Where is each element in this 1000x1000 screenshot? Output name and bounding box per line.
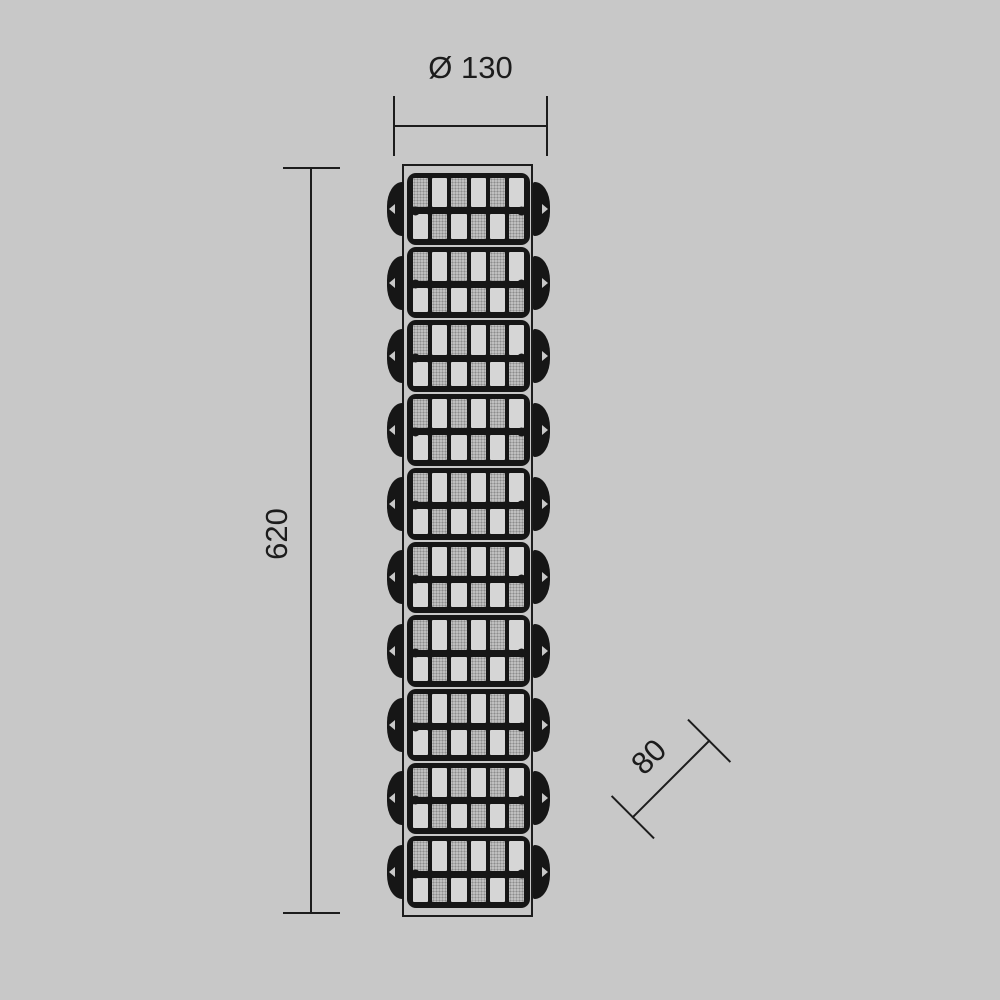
knob-notch-icon bbox=[542, 425, 548, 435]
crystal-cell bbox=[490, 583, 505, 607]
crystal-cell bbox=[432, 252, 447, 281]
crystal-cell bbox=[471, 362, 486, 386]
segment-grid bbox=[413, 252, 524, 313]
band-dot bbox=[517, 575, 526, 584]
band-dot bbox=[517, 427, 526, 436]
crystal-cell bbox=[490, 768, 505, 797]
left-knob bbox=[387, 771, 404, 825]
crystal-cell bbox=[413, 583, 428, 607]
height-dimension-label: 620 bbox=[261, 504, 293, 564]
crystal-cell bbox=[490, 288, 505, 312]
crystal-cell bbox=[413, 288, 428, 312]
band-dot bbox=[411, 648, 420, 657]
crystal-cell bbox=[451, 804, 466, 828]
crystal-cell bbox=[413, 768, 428, 797]
crystal-cell bbox=[432, 657, 447, 681]
crystal-cell bbox=[509, 362, 524, 386]
crystal-cell bbox=[471, 288, 486, 312]
crystal-cell bbox=[451, 730, 466, 754]
crystal-cell bbox=[490, 620, 505, 649]
right-knob bbox=[533, 477, 550, 531]
knob-notch-icon bbox=[542, 867, 548, 877]
fixture-segments bbox=[407, 173, 530, 908]
segment-grid bbox=[413, 547, 524, 608]
crystal-cell bbox=[451, 878, 466, 902]
band-dot bbox=[411, 796, 420, 805]
segment-grid bbox=[413, 178, 524, 239]
crystal-cell bbox=[471, 878, 486, 902]
right-knob bbox=[533, 403, 550, 457]
crystal-cell bbox=[413, 362, 428, 386]
crystal-cell bbox=[490, 878, 505, 902]
crystal-cell bbox=[471, 547, 486, 576]
crystal-cell bbox=[509, 583, 524, 607]
crystal-cell bbox=[432, 620, 447, 649]
crystal-cell bbox=[471, 730, 486, 754]
crystal-cell bbox=[451, 620, 466, 649]
fixture-segment bbox=[407, 763, 530, 835]
crystal-cell bbox=[413, 878, 428, 902]
crystal-cell bbox=[509, 509, 524, 533]
band-dot bbox=[411, 575, 420, 584]
crystal-cell bbox=[509, 435, 524, 459]
band-dot bbox=[411, 427, 420, 436]
crystal-cell bbox=[509, 878, 524, 902]
crystal-cell bbox=[413, 473, 428, 502]
crystal-cell bbox=[471, 804, 486, 828]
right-knob bbox=[533, 698, 550, 752]
crystal-cell bbox=[451, 583, 466, 607]
crystal-cell bbox=[451, 768, 466, 797]
segment-grid bbox=[413, 399, 524, 460]
crystal-cell bbox=[432, 325, 447, 354]
crystal-cell bbox=[413, 214, 428, 238]
fixture-segment bbox=[407, 689, 530, 761]
crystal-cell bbox=[451, 657, 466, 681]
crystal-cell bbox=[471, 620, 486, 649]
crystal-cell bbox=[432, 547, 447, 576]
crystal-cell bbox=[509, 399, 524, 428]
crystal-cell bbox=[509, 547, 524, 576]
right-knob bbox=[533, 182, 550, 236]
crystal-cell bbox=[471, 252, 486, 281]
crystal-cell bbox=[509, 252, 524, 281]
band-dot bbox=[517, 354, 526, 363]
crystal-cell bbox=[432, 178, 447, 207]
crystal-cell bbox=[413, 841, 428, 870]
crystal-cell bbox=[471, 473, 486, 502]
crystal-cell bbox=[471, 399, 486, 428]
crystal-cell bbox=[432, 399, 447, 428]
crystal-cell bbox=[432, 214, 447, 238]
diameter-dimension-tick-left bbox=[393, 96, 395, 156]
segment-grid bbox=[413, 694, 524, 755]
diameter-dimension-label: Ø 130 bbox=[393, 52, 548, 84]
left-knob bbox=[387, 182, 404, 236]
crystal-cell bbox=[490, 252, 505, 281]
crystal-cell bbox=[509, 325, 524, 354]
band-dot bbox=[411, 280, 420, 289]
right-knob bbox=[533, 550, 550, 604]
crystal-cell bbox=[451, 473, 466, 502]
crystal-cell bbox=[509, 178, 524, 207]
crystal-cell bbox=[413, 178, 428, 207]
band-dot bbox=[517, 869, 526, 878]
crystal-cell bbox=[471, 694, 486, 723]
crystal-cell bbox=[509, 620, 524, 649]
crystal-cell bbox=[432, 362, 447, 386]
height-dimension-line bbox=[310, 167, 312, 914]
crystal-cell bbox=[413, 547, 428, 576]
height-dimension-tick-bottom bbox=[283, 912, 340, 914]
fixture-segment bbox=[407, 542, 530, 614]
crystal-cell bbox=[471, 214, 486, 238]
knob-notch-icon bbox=[389, 204, 395, 214]
depth-dimension-label: 80 bbox=[599, 707, 699, 807]
crystal-cell bbox=[490, 547, 505, 576]
crystal-cell bbox=[451, 325, 466, 354]
right-knob bbox=[533, 624, 550, 678]
crystal-cell bbox=[451, 435, 466, 459]
crystal-cell bbox=[413, 804, 428, 828]
crystal-cell bbox=[509, 288, 524, 312]
left-knob bbox=[387, 477, 404, 531]
crystal-cell bbox=[490, 214, 505, 238]
knob-notch-icon bbox=[542, 499, 548, 509]
fixture-drawing bbox=[387, 164, 550, 917]
crystal-cell bbox=[413, 620, 428, 649]
crystal-cell bbox=[490, 694, 505, 723]
knob-notch-icon bbox=[389, 867, 395, 877]
crystal-cell bbox=[451, 694, 466, 723]
left-knob bbox=[387, 624, 404, 678]
knob-notch-icon bbox=[542, 204, 548, 214]
diameter-dimension-line bbox=[393, 125, 548, 127]
crystal-cell bbox=[509, 804, 524, 828]
crystal-cell bbox=[509, 730, 524, 754]
crystal-cell bbox=[471, 583, 486, 607]
band-dot bbox=[517, 206, 526, 215]
segment-grid bbox=[413, 325, 524, 386]
segment-grid bbox=[413, 841, 524, 902]
fixture-segment bbox=[407, 836, 530, 908]
left-knob bbox=[387, 403, 404, 457]
crystal-cell bbox=[490, 657, 505, 681]
knob-notch-icon bbox=[389, 278, 395, 288]
crystal-cell bbox=[471, 325, 486, 354]
segment-grid bbox=[413, 473, 524, 534]
height-dimension-tick-top bbox=[283, 167, 340, 169]
crystal-cell bbox=[509, 657, 524, 681]
fixture-segment bbox=[407, 173, 530, 245]
crystal-cell bbox=[451, 399, 466, 428]
crystal-cell bbox=[451, 252, 466, 281]
fixture-segment bbox=[407, 320, 530, 392]
crystal-cell bbox=[471, 435, 486, 459]
segment-grid bbox=[413, 620, 524, 681]
depth-dimension: 80 bbox=[611, 719, 731, 839]
band-dot bbox=[411, 722, 420, 731]
crystal-cell bbox=[451, 509, 466, 533]
crystal-cell bbox=[413, 252, 428, 281]
diameter-dimension: Ø 130 bbox=[393, 96, 548, 156]
crystal-cell bbox=[471, 768, 486, 797]
band-dot bbox=[411, 501, 420, 510]
height-dimension: 620 bbox=[283, 167, 340, 914]
crystal-cell bbox=[432, 509, 447, 533]
crystal-cell bbox=[490, 841, 505, 870]
diameter-dimension-tick-right bbox=[546, 96, 548, 156]
crystal-cell bbox=[490, 325, 505, 354]
left-knob bbox=[387, 256, 404, 310]
knob-notch-icon bbox=[389, 572, 395, 582]
crystal-cell bbox=[413, 657, 428, 681]
crystal-cell bbox=[451, 288, 466, 312]
fixture-segment bbox=[407, 615, 530, 687]
knob-notch-icon bbox=[542, 720, 548, 730]
left-knob bbox=[387, 845, 404, 899]
crystal-cell bbox=[432, 804, 447, 828]
band-dot bbox=[517, 648, 526, 657]
crystal-cell bbox=[451, 178, 466, 207]
band-dot bbox=[517, 796, 526, 805]
crystal-cell bbox=[451, 362, 466, 386]
crystal-cell bbox=[413, 730, 428, 754]
crystal-cell bbox=[490, 804, 505, 828]
crystal-cell bbox=[509, 473, 524, 502]
crystal-cell bbox=[471, 509, 486, 533]
knob-notch-icon bbox=[542, 572, 548, 582]
crystal-cell bbox=[432, 878, 447, 902]
crystal-cell bbox=[471, 178, 486, 207]
knob-notch-icon bbox=[389, 646, 395, 656]
crystal-cell bbox=[509, 694, 524, 723]
crystal-cell bbox=[509, 214, 524, 238]
knob-notch-icon bbox=[389, 720, 395, 730]
left-knob bbox=[387, 698, 404, 752]
band-dot bbox=[411, 869, 420, 878]
crystal-cell bbox=[432, 730, 447, 754]
crystal-cell bbox=[432, 473, 447, 502]
crystal-cell bbox=[432, 841, 447, 870]
knob-notch-icon bbox=[389, 425, 395, 435]
knob-notch-icon bbox=[542, 646, 548, 656]
crystal-cell bbox=[413, 435, 428, 459]
crystal-cell bbox=[432, 583, 447, 607]
right-knob bbox=[533, 845, 550, 899]
crystal-cell bbox=[509, 841, 524, 870]
crystal-cell bbox=[490, 178, 505, 207]
crystal-cell bbox=[471, 841, 486, 870]
fixture-segment bbox=[407, 247, 530, 319]
crystal-cell bbox=[413, 325, 428, 354]
knob-notch-icon bbox=[542, 793, 548, 803]
band-dot bbox=[517, 280, 526, 289]
band-dot bbox=[517, 501, 526, 510]
knob-notch-icon bbox=[542, 278, 548, 288]
crystal-cell bbox=[509, 768, 524, 797]
right-knob bbox=[533, 256, 550, 310]
band-dot bbox=[517, 722, 526, 731]
crystal-cell bbox=[413, 694, 428, 723]
crystal-cell bbox=[432, 694, 447, 723]
knob-notch-icon bbox=[389, 351, 395, 361]
fixture-segment bbox=[407, 468, 530, 540]
drawing-canvas: Ø 130 620 80 bbox=[0, 0, 1000, 1000]
crystal-cell bbox=[432, 288, 447, 312]
crystal-cell bbox=[490, 435, 505, 459]
left-knob bbox=[387, 550, 404, 604]
band-dot bbox=[411, 206, 420, 215]
crystal-cell bbox=[432, 768, 447, 797]
segment-grid bbox=[413, 768, 524, 829]
crystal-cell bbox=[413, 509, 428, 533]
right-knob bbox=[533, 771, 550, 825]
knob-notch-icon bbox=[389, 793, 395, 803]
crystal-cell bbox=[490, 473, 505, 502]
band-dot bbox=[411, 354, 420, 363]
knob-notch-icon bbox=[542, 351, 548, 361]
crystal-cell bbox=[490, 362, 505, 386]
crystal-cell bbox=[451, 547, 466, 576]
crystal-cell bbox=[490, 730, 505, 754]
crystal-cell bbox=[413, 399, 428, 428]
left-knob bbox=[387, 329, 404, 383]
crystal-cell bbox=[490, 509, 505, 533]
right-knob bbox=[533, 329, 550, 383]
crystal-cell bbox=[451, 841, 466, 870]
crystal-cell bbox=[471, 657, 486, 681]
crystal-cell bbox=[432, 435, 447, 459]
knob-notch-icon bbox=[389, 499, 395, 509]
crystal-cell bbox=[451, 214, 466, 238]
fixture-segment bbox=[407, 394, 530, 466]
crystal-cell bbox=[490, 399, 505, 428]
